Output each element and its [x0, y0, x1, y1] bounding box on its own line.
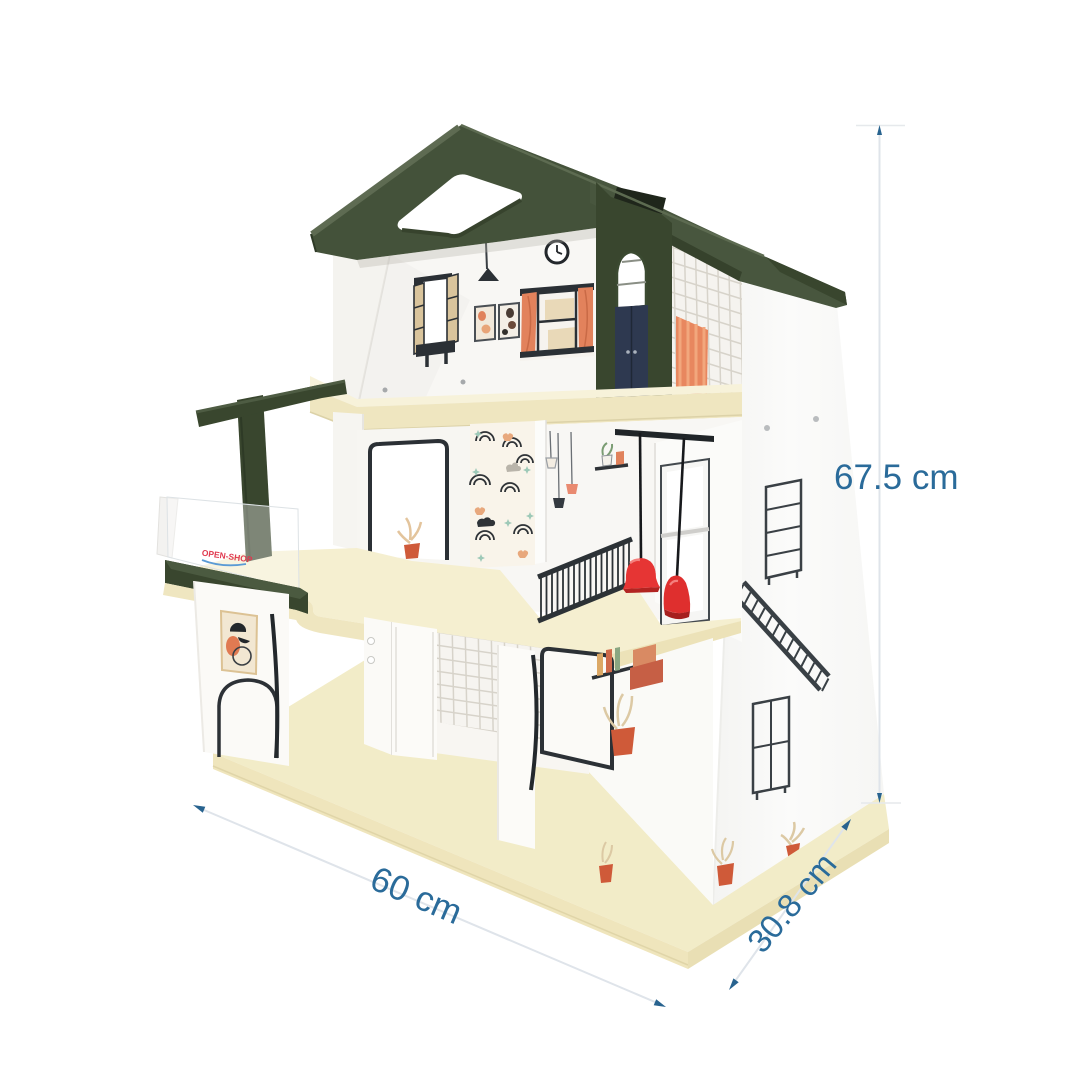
svg-text:67.5 cm: 67.5 cm [834, 458, 959, 497]
